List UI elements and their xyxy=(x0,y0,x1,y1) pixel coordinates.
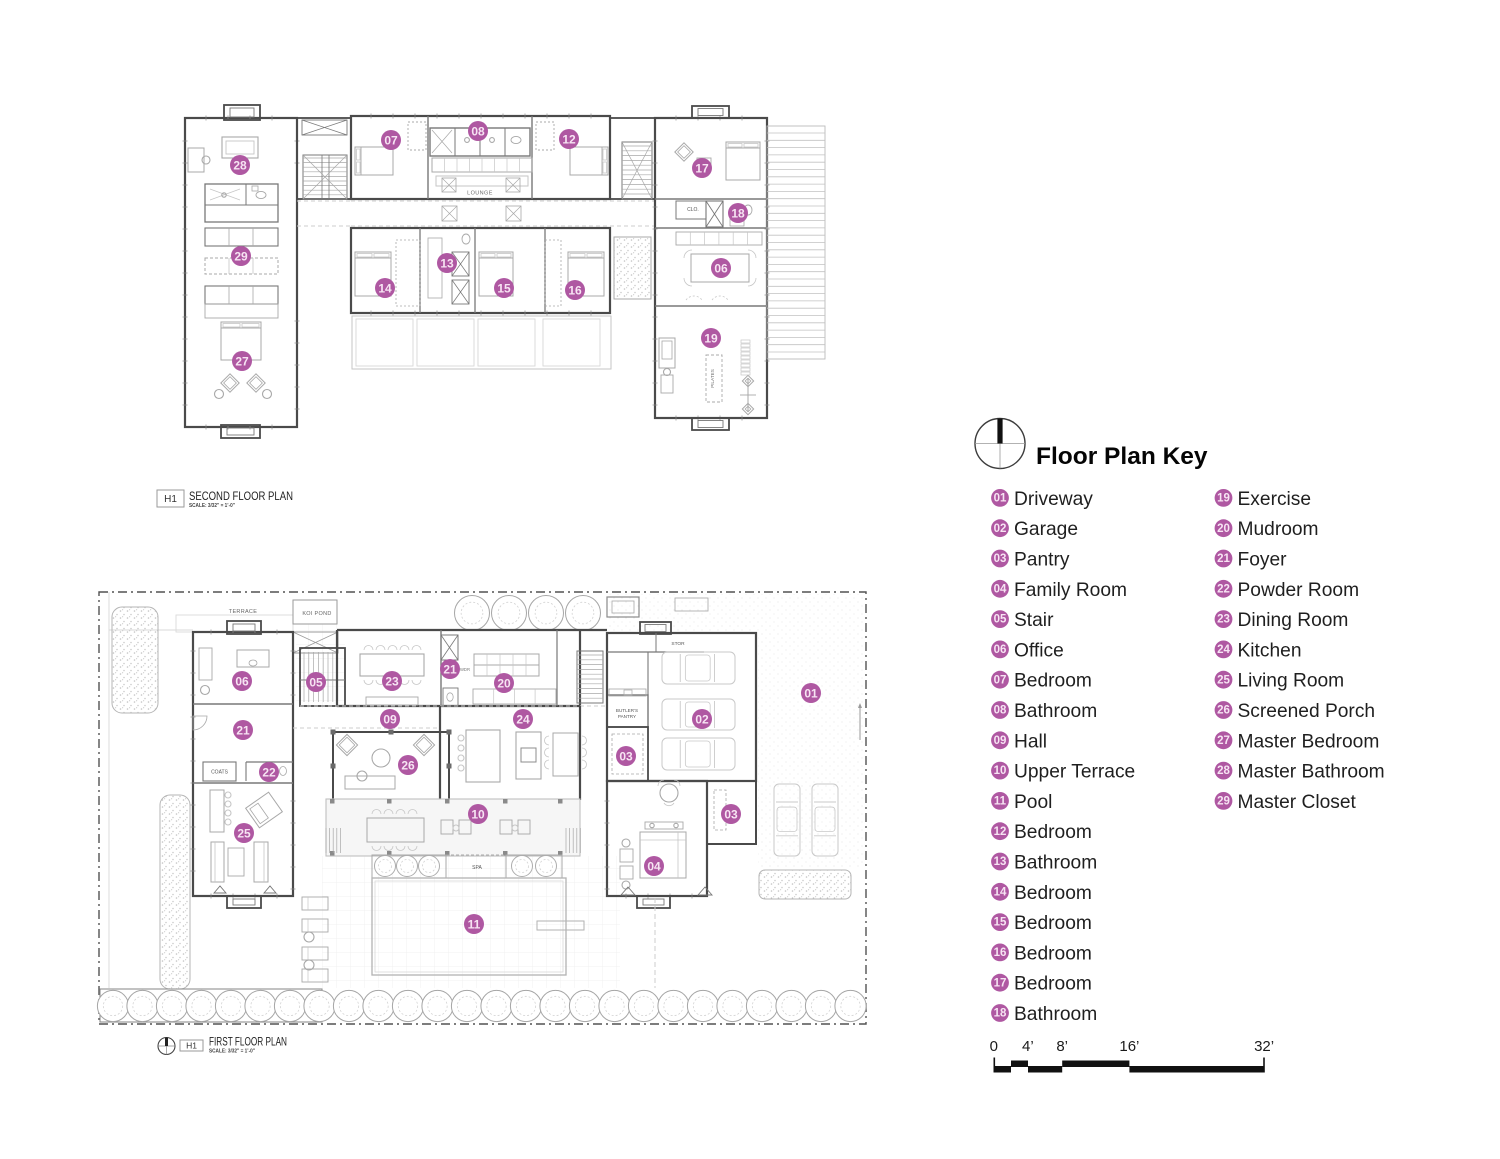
svg-text:25: 25 xyxy=(237,826,251,840)
svg-text:11: 11 xyxy=(468,917,481,931)
svg-text:Pool: Pool xyxy=(1014,792,1052,813)
svg-text:SCALE: 3/32" = 1’-0": SCALE: 3/32" = 1’-0" xyxy=(209,1049,256,1055)
svg-text:02: 02 xyxy=(695,712,709,726)
svg-text:21: 21 xyxy=(236,723,250,737)
svg-text:SCALE: 3/32" = 1’-0": SCALE: 3/32" = 1’-0" xyxy=(189,503,236,509)
svg-text:14: 14 xyxy=(994,886,1007,898)
svg-text:21: 21 xyxy=(1217,553,1230,565)
svg-text:Bathroom: Bathroom xyxy=(1014,1004,1097,1025)
svg-text:06: 06 xyxy=(994,644,1007,656)
svg-text:Bedroom: Bedroom xyxy=(1014,671,1092,692)
svg-text:CLO.: CLO. xyxy=(687,207,699,213)
svg-text:24: 24 xyxy=(1217,644,1230,656)
svg-text:17: 17 xyxy=(994,977,1007,989)
svg-text:04: 04 xyxy=(647,859,661,873)
svg-text:COATS: COATS xyxy=(211,770,229,776)
svg-text:Driveway: Driveway xyxy=(1014,489,1093,510)
svg-text:0: 0 xyxy=(990,1038,998,1055)
svg-text:29: 29 xyxy=(1217,796,1230,808)
svg-text:Exercise: Exercise xyxy=(1238,489,1312,510)
svg-text:10: 10 xyxy=(471,807,485,821)
svg-text:06: 06 xyxy=(714,261,728,275)
svg-text:17: 17 xyxy=(695,161,709,175)
svg-text:22: 22 xyxy=(262,765,276,779)
svg-text:Powder Room: Powder Room xyxy=(1238,580,1360,601)
svg-text:Bedroom: Bedroom xyxy=(1014,943,1092,964)
svg-text:Mudroom: Mudroom xyxy=(1238,519,1319,540)
svg-text:27: 27 xyxy=(235,354,249,368)
svg-text:Bedroom: Bedroom xyxy=(1014,913,1092,934)
svg-text:09: 09 xyxy=(383,712,397,726)
svg-text:24: 24 xyxy=(516,712,530,726)
svg-text:19: 19 xyxy=(1217,493,1230,505)
svg-text:09: 09 xyxy=(994,735,1007,747)
svg-text:16: 16 xyxy=(568,283,582,297)
svg-text:22: 22 xyxy=(1217,583,1230,595)
svg-text:20: 20 xyxy=(497,676,511,690)
svg-text:Upper Terrace: Upper Terrace xyxy=(1014,762,1135,783)
svg-text:03: 03 xyxy=(619,749,633,763)
svg-text:16’: 16’ xyxy=(1119,1038,1139,1055)
svg-text:Bedroom: Bedroom xyxy=(1014,974,1092,995)
svg-text:15: 15 xyxy=(994,917,1007,929)
svg-text:16: 16 xyxy=(994,947,1007,959)
svg-text:07: 07 xyxy=(384,133,398,147)
svg-text:BUTLER’S: BUTLER’S xyxy=(616,708,638,713)
svg-text:14: 14 xyxy=(378,281,392,295)
svg-text:23: 23 xyxy=(385,674,399,688)
svg-text:20: 20 xyxy=(1217,523,1230,535)
svg-text:03: 03 xyxy=(724,807,738,821)
svg-text:WDR: WDR xyxy=(460,667,470,672)
svg-text:05: 05 xyxy=(994,614,1007,626)
svg-text:15: 15 xyxy=(497,281,511,295)
svg-text:Floor Plan Key: Floor Plan Key xyxy=(1036,443,1208,470)
svg-text:18: 18 xyxy=(994,1008,1007,1020)
svg-text:Bathroom: Bathroom xyxy=(1014,701,1097,722)
svg-text:07: 07 xyxy=(994,674,1007,686)
svg-text:01: 01 xyxy=(994,493,1007,505)
svg-text:12: 12 xyxy=(994,826,1007,838)
svg-text:PANTRY: PANTRY xyxy=(618,714,636,719)
svg-text:Hall: Hall xyxy=(1014,731,1047,752)
svg-text:26: 26 xyxy=(401,758,415,772)
svg-text:28: 28 xyxy=(233,158,247,172)
svg-text:H1: H1 xyxy=(186,1041,197,1051)
svg-text:29: 29 xyxy=(234,249,248,263)
svg-text:08: 08 xyxy=(994,705,1007,717)
svg-text:23: 23 xyxy=(1217,614,1230,626)
svg-text:Bedroom: Bedroom xyxy=(1014,883,1092,904)
svg-text:STOR: STOR xyxy=(671,641,685,647)
svg-text:06: 06 xyxy=(235,674,249,688)
svg-text:Master Bathroom: Master Bathroom xyxy=(1238,762,1385,783)
svg-text:Stair: Stair xyxy=(1014,610,1054,631)
svg-text:19: 19 xyxy=(704,331,718,345)
svg-text:Kitchen: Kitchen xyxy=(1238,640,1302,661)
svg-text:TERRACE: TERRACE xyxy=(229,609,257,615)
svg-text:25: 25 xyxy=(1217,674,1230,686)
svg-text:05: 05 xyxy=(309,675,323,689)
svg-text:Bedroom: Bedroom xyxy=(1014,822,1092,843)
svg-text:Garage: Garage xyxy=(1014,519,1078,540)
svg-text:8’: 8’ xyxy=(1056,1038,1068,1055)
svg-text:Family Room: Family Room xyxy=(1014,580,1127,601)
svg-text:11: 11 xyxy=(994,796,1007,808)
svg-text:08: 08 xyxy=(471,124,485,138)
svg-text:01: 01 xyxy=(804,686,818,700)
svg-text:Master Closet: Master Closet xyxy=(1238,792,1357,813)
svg-text:H1: H1 xyxy=(164,494,177,505)
svg-text:Screened Porch: Screened Porch xyxy=(1238,701,1376,722)
svg-text:21: 21 xyxy=(443,662,457,676)
svg-text:4’: 4’ xyxy=(1022,1038,1034,1055)
svg-text:SECOND FLOOR PLAN: SECOND FLOOR PLAN xyxy=(189,491,293,503)
svg-text:Dining Room: Dining Room xyxy=(1238,610,1349,631)
svg-text:18: 18 xyxy=(731,206,745,220)
svg-text:LOUNGE: LOUNGE xyxy=(467,191,493,197)
svg-text:Bathroom: Bathroom xyxy=(1014,853,1097,874)
svg-text:28: 28 xyxy=(1217,765,1230,777)
svg-text:02: 02 xyxy=(994,523,1007,535)
svg-text:Foyer: Foyer xyxy=(1238,550,1288,571)
svg-text:Living Room: Living Room xyxy=(1238,671,1345,692)
svg-text:Office: Office xyxy=(1014,640,1064,661)
svg-text:03: 03 xyxy=(994,553,1007,565)
svg-text:Master Bedroom: Master Bedroom xyxy=(1238,731,1380,752)
svg-text:04: 04 xyxy=(994,583,1007,595)
svg-text:KOI POND: KOI POND xyxy=(302,611,331,617)
svg-text:13: 13 xyxy=(994,856,1007,868)
svg-text:12: 12 xyxy=(562,132,576,146)
svg-text:10: 10 xyxy=(994,765,1007,777)
svg-text:Pantry: Pantry xyxy=(1014,550,1070,571)
svg-text:PILATES: PILATES xyxy=(710,369,715,388)
svg-text:FIRST FLOOR PLAN: FIRST FLOOR PLAN xyxy=(209,1037,287,1049)
svg-text:27: 27 xyxy=(1217,735,1230,747)
svg-text:26: 26 xyxy=(1217,705,1230,717)
svg-text:13: 13 xyxy=(440,256,454,270)
svg-text:32’: 32’ xyxy=(1254,1038,1274,1055)
svg-text:SPA: SPA xyxy=(472,865,482,871)
